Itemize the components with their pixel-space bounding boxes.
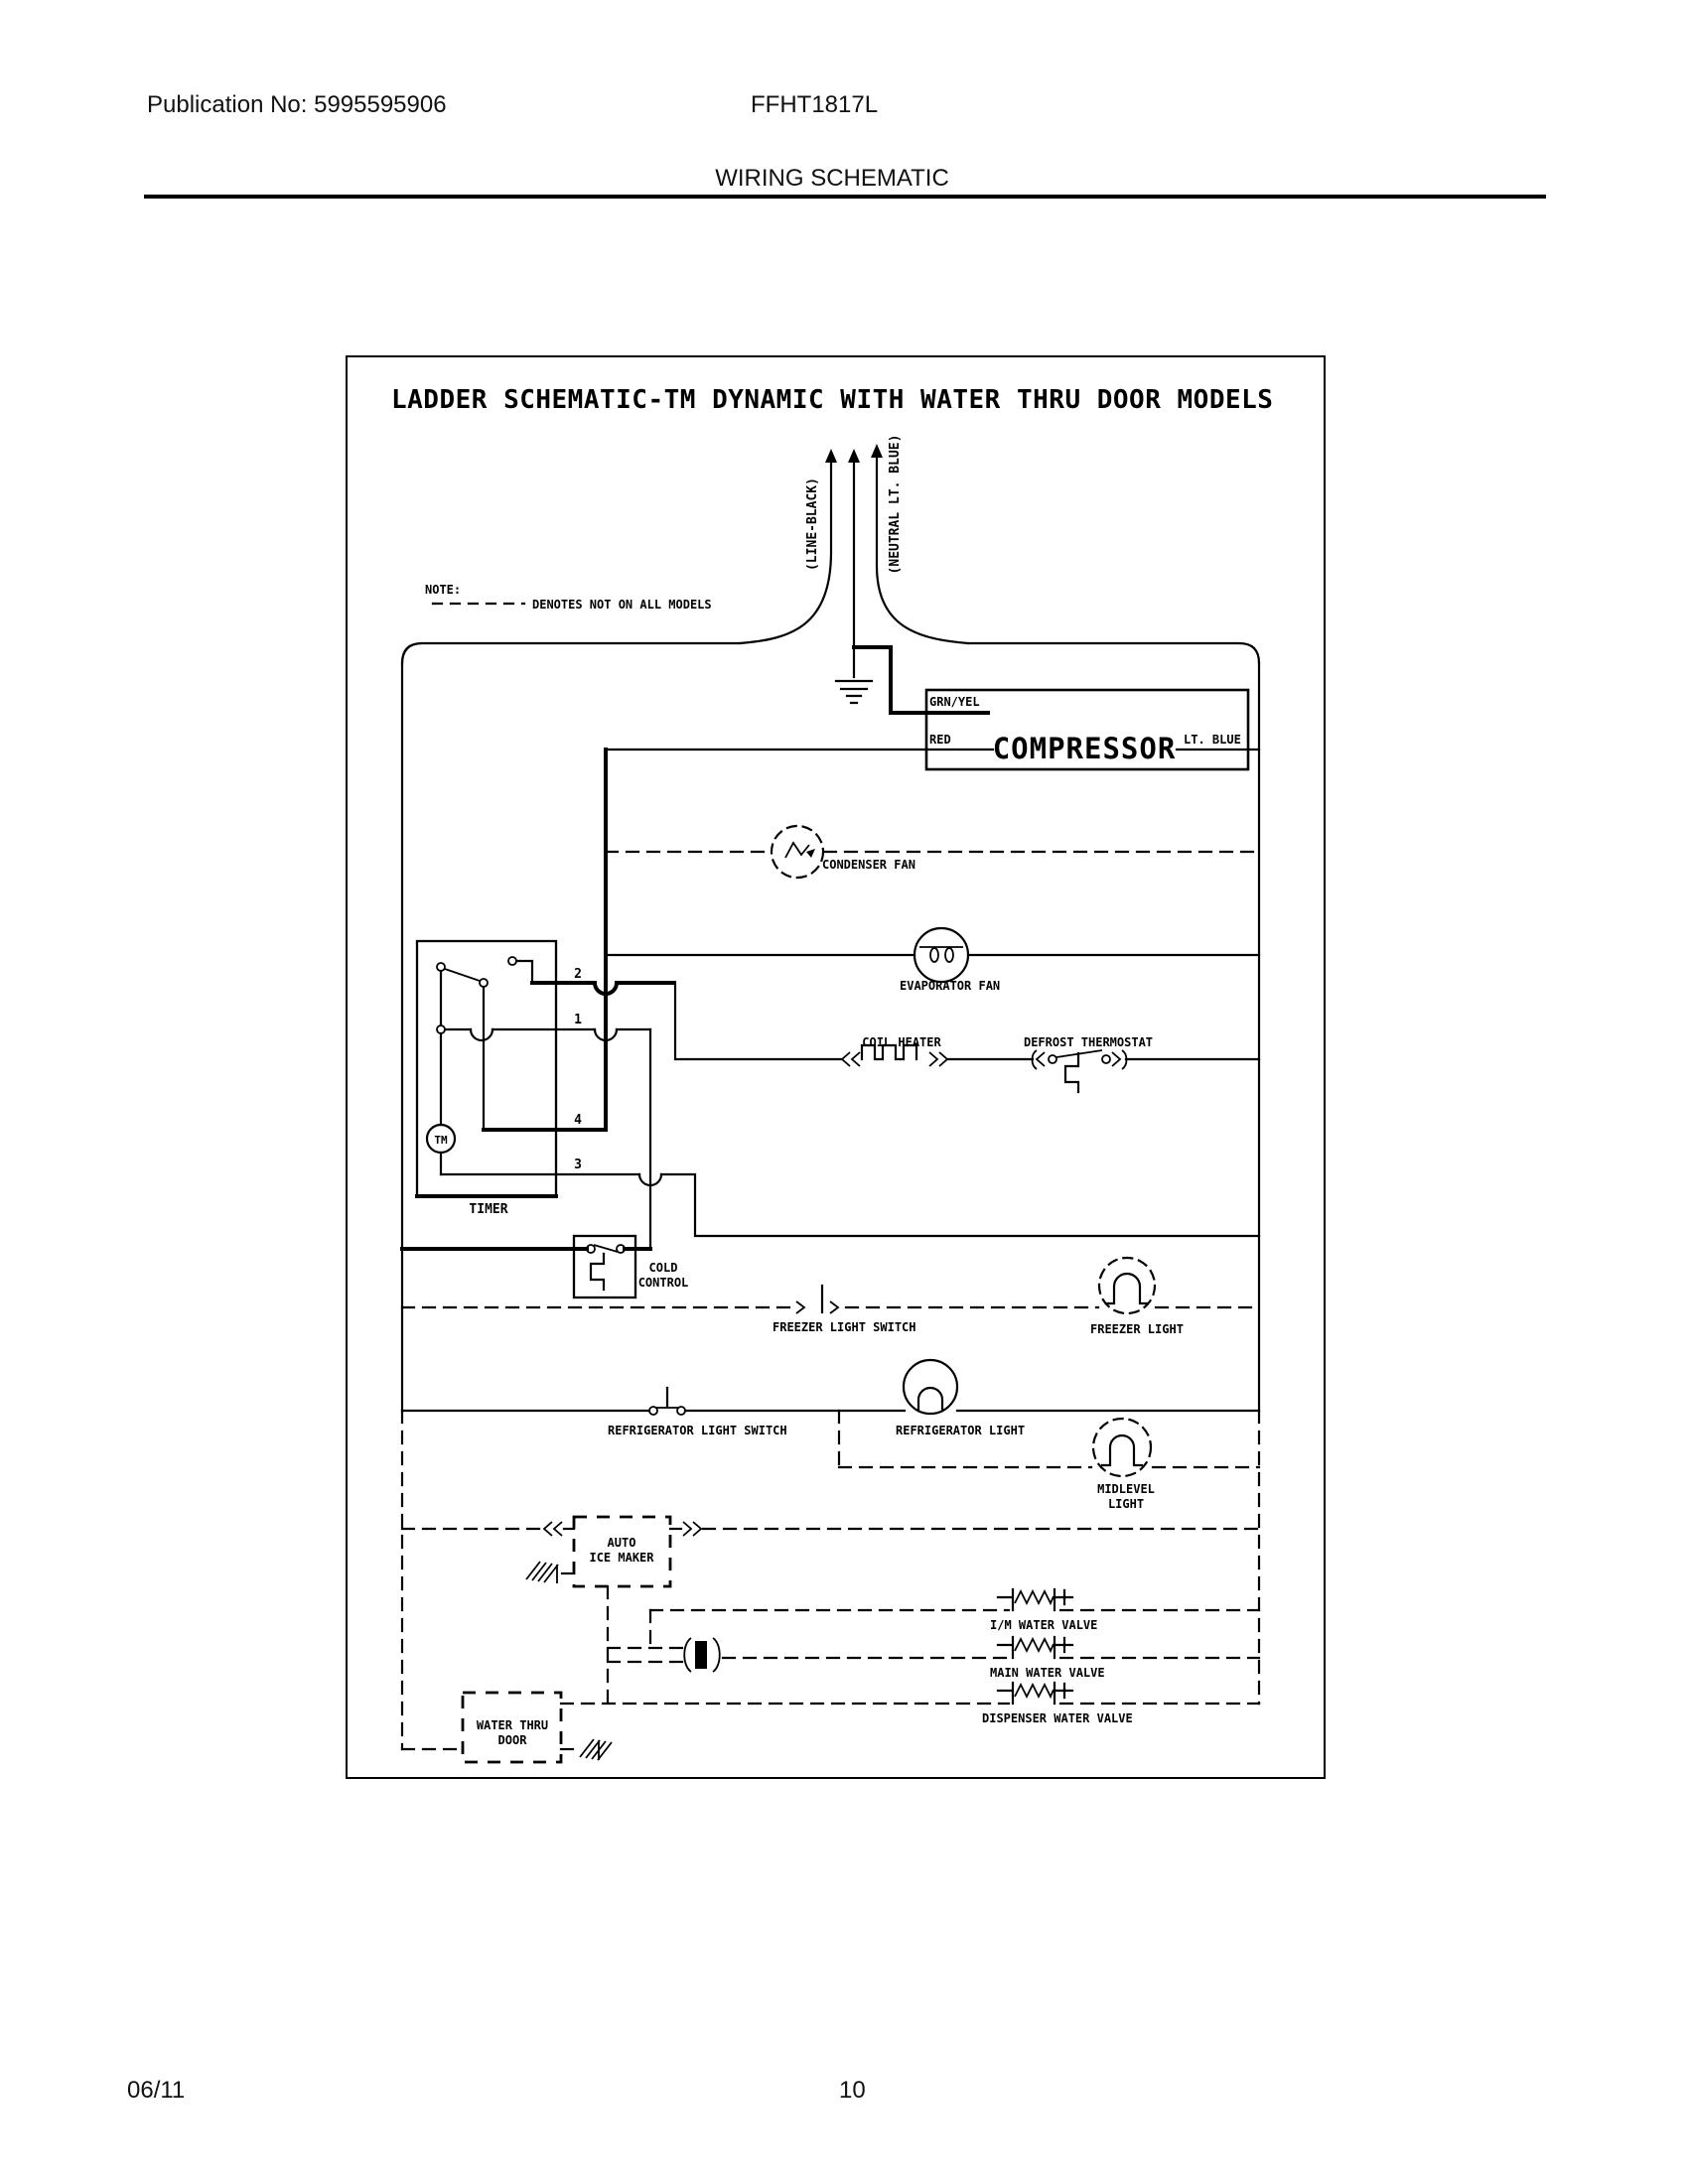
freezer-light-switch-label: FREEZER LIGHT SWITCH: [773, 1320, 916, 1334]
defrost-thermostat-symbol: [1033, 1050, 1260, 1092]
timer-terminal-4: 4: [574, 1113, 582, 1128]
water-thru-door-label-1: WATER THRU: [477, 1718, 548, 1732]
cold-control-label-2: CONTROL: [638, 1276, 689, 1290]
cold-control-label-1: COLD: [649, 1261, 678, 1275]
timer-motor-label: TM: [434, 1134, 448, 1147]
coil-heater-symbol: [675, 983, 1033, 1066]
timer-terminal-2: 2: [574, 967, 582, 982]
midlevel-light-label-2: LIGHT: [1108, 1497, 1144, 1511]
freezer-light-switch-symbol: [402, 1286, 1098, 1313]
evaporator-fan-label: EVAPORATOR FAN: [900, 979, 1000, 993]
note-text: DENOTES NOT ON ALL MODELS: [532, 598, 712, 612]
neutral-blue-label: (NEUTRAL LT. BLUE): [888, 435, 903, 575]
main-water-valve-label: MAIN WATER VALVE: [990, 1666, 1105, 1680]
condenser-fan-label: CONDENSER FAN: [822, 858, 915, 872]
line-arrow-icon: [825, 449, 837, 463]
ground-arrow-icon: [848, 449, 860, 463]
im-water-valve-label: I/M WATER VALVE: [990, 1618, 1097, 1632]
timer-terminal-3: 3: [574, 1158, 582, 1172]
freezer-light-symbol: [1099, 1258, 1259, 1313]
defrost-thermostat-label: DEFROST THERMOSTAT: [1024, 1035, 1153, 1049]
evaporator-fan-symbol: [606, 928, 1259, 982]
power-supply-lines: [402, 444, 1259, 1749]
coil-heater-label: COIL HEATER: [862, 1035, 941, 1049]
ice-maker-label-2: ICE MAKER: [589, 1551, 654, 1565]
condenser-fan-symbol: [606, 826, 1259, 878]
grn-yel-label: GRN/YEL: [929, 695, 980, 709]
timer-terminal-1: 1: [574, 1013, 582, 1027]
earth-ground-icon: [836, 681, 872, 703]
footer-page-number: 10: [839, 2077, 866, 2105]
compressor-label: COMPRESSOR: [993, 732, 1177, 765]
dispenser-water-valve-symbol: [561, 1683, 1259, 1704]
dispenser-water-valve-label: DISPENSER WATER VALVE: [982, 1711, 1133, 1725]
red-label: RED: [929, 733, 951, 747]
cold-control-symbol: [402, 1236, 650, 1297]
refrigerator-light-symbol: [904, 1360, 1259, 1414]
chassis-ground-icon: [526, 1562, 558, 1583]
refrigerator-light-label: REFRIGERATOR LIGHT: [896, 1424, 1025, 1437]
manual-page: Publication No: 5995595906 FFHT1817L WIR…: [0, 0, 1688, 2184]
neutral-arrow-icon: [871, 444, 883, 458]
im-water-valve-symbol: [650, 1589, 1259, 1610]
midlevel-light-label-1: MIDLEVEL: [1097, 1482, 1155, 1496]
ice-maker-symbol: [402, 1517, 1259, 1586]
harness-connector-symbol: [608, 1586, 720, 1706]
note-label: NOTE:: [425, 583, 461, 597]
freezer-light-label: FREEZER LIGHT: [1090, 1322, 1184, 1336]
refrigerator-light-switch-symbol: [402, 1388, 905, 1415]
chassis-ground-icon: [580, 1739, 612, 1760]
midlevel-light-symbol: [839, 1411, 1259, 1476]
main-water-valve-symbol: [723, 1637, 1259, 1658]
water-thru-door-label-2: DOOR: [498, 1733, 528, 1747]
lt-blue-label: LT. BLUE: [1184, 733, 1241, 747]
ice-maker-label-1: AUTO: [608, 1536, 636, 1550]
timer-label: TIMER: [469, 1202, 507, 1217]
timer-symbol: [417, 941, 1259, 1249]
ladder-schematic: (LINE-BLACK) (NEUTRAL LT. BLUE) NOTE: DE…: [0, 0, 1688, 2184]
refrigerator-light-switch-label: REFRIGERATOR LIGHT SWITCH: [608, 1424, 787, 1437]
line-black-label: (LINE-BLACK): [805, 478, 820, 571]
footer-date: 06/11: [127, 2077, 185, 2105]
